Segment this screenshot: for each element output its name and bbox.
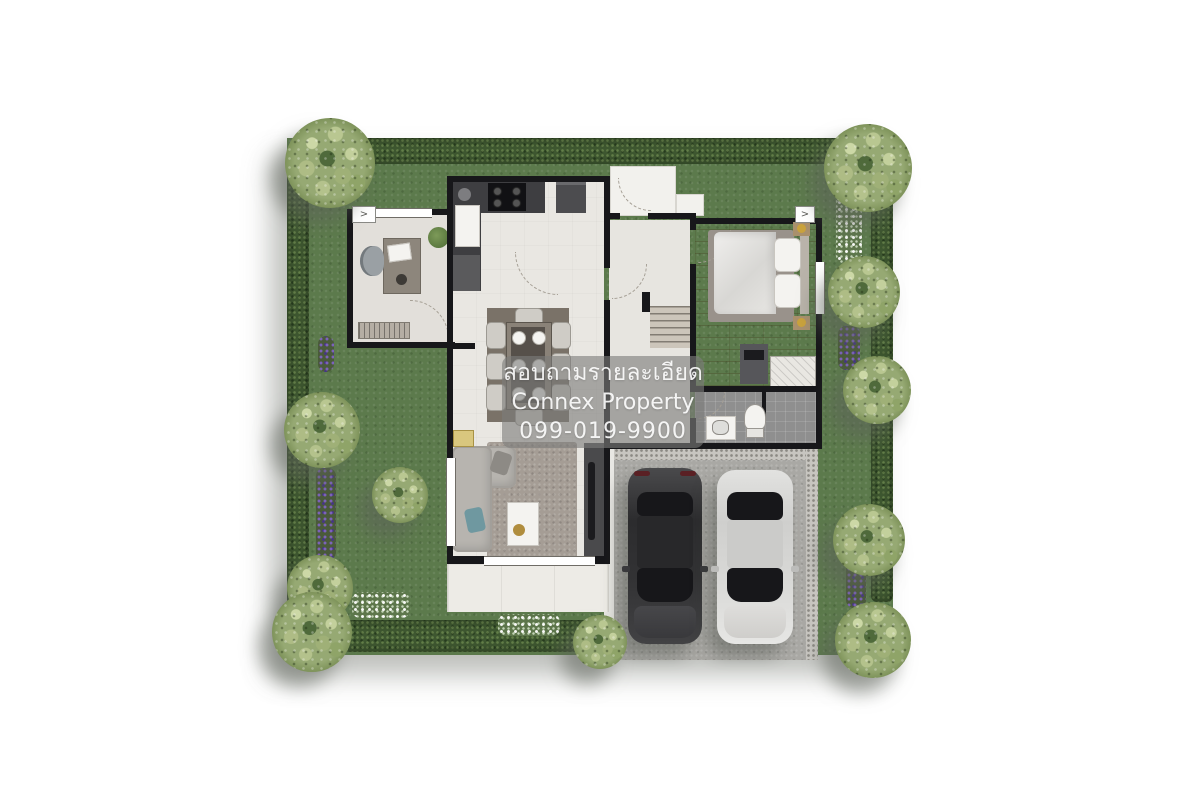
wall bbox=[447, 176, 453, 458]
plate bbox=[532, 331, 546, 345]
bedroom-tv-screen bbox=[744, 350, 764, 360]
car-roof bbox=[727, 520, 783, 568]
car-mirror bbox=[791, 566, 799, 572]
tree bbox=[833, 504, 905, 576]
bed-duvet bbox=[714, 232, 776, 314]
tv-screen bbox=[588, 462, 595, 540]
dining-chair bbox=[486, 322, 506, 349]
refrigerator-icon bbox=[556, 182, 586, 213]
watermark-line-brand: Connex Property bbox=[512, 388, 695, 417]
stove-icon bbox=[488, 183, 526, 211]
dining-chair bbox=[551, 322, 571, 349]
flowerbed-white-bottom-left bbox=[352, 592, 410, 618]
tree bbox=[285, 118, 375, 208]
toilet-icon bbox=[744, 404, 766, 430]
flowerbed-purple-left bbox=[316, 468, 336, 560]
bedroom-entry-marker: > bbox=[795, 206, 815, 223]
wall bbox=[816, 312, 822, 449]
car-rear-window bbox=[727, 492, 783, 520]
bed-pillow bbox=[774, 274, 801, 308]
floor-lamp bbox=[453, 430, 474, 447]
table-lamp-icon bbox=[797, 224, 806, 233]
bedroom-window bbox=[815, 262, 825, 314]
office-plant-icon bbox=[428, 227, 449, 248]
tree bbox=[828, 256, 900, 328]
flowerbed-purple-left-upper bbox=[318, 336, 334, 372]
wall bbox=[349, 342, 455, 348]
watermark-line-phone: 099-019-9900 bbox=[519, 417, 687, 446]
car-dark bbox=[628, 468, 702, 644]
hedge-top bbox=[295, 138, 895, 164]
wall bbox=[642, 292, 650, 312]
watermark-line-thai: สอบถามรายละเอียด bbox=[503, 359, 703, 388]
table-lamp-icon bbox=[797, 318, 806, 327]
office-window bbox=[376, 208, 432, 218]
bed-pillow bbox=[774, 238, 801, 272]
car-silver bbox=[717, 470, 793, 644]
laptop-icon bbox=[387, 242, 412, 262]
car-windshield bbox=[727, 568, 783, 602]
tree bbox=[284, 392, 360, 468]
car-tail-light bbox=[680, 471, 696, 476]
living-room-sliding-door bbox=[484, 556, 595, 566]
car-roof bbox=[637, 516, 693, 568]
tree bbox=[843, 356, 911, 424]
toilet-tank bbox=[746, 428, 764, 438]
corner-sink bbox=[458, 188, 471, 201]
wall bbox=[604, 176, 610, 268]
arrow-icon: > bbox=[801, 209, 809, 220]
wardrobe bbox=[770, 356, 816, 388]
arrow-icon: > bbox=[360, 209, 368, 220]
wall bbox=[690, 386, 820, 392]
wall bbox=[816, 218, 822, 264]
car-windshield bbox=[637, 568, 693, 602]
tree bbox=[824, 124, 912, 212]
car-rear-window bbox=[637, 492, 693, 516]
tree bbox=[272, 592, 352, 672]
kitchen-sink bbox=[455, 205, 480, 247]
watermark: สอบถามรายละเอียด Connex Property 099-019… bbox=[502, 356, 704, 448]
coffee-table bbox=[507, 502, 539, 546]
garden-bush bbox=[573, 615, 627, 669]
wall bbox=[447, 556, 487, 564]
car-hood bbox=[634, 606, 696, 638]
wall bbox=[347, 209, 353, 348]
wall bbox=[648, 213, 696, 219]
car-mirror bbox=[700, 566, 708, 572]
kitchen-cabinet bbox=[452, 255, 480, 291]
car-mirror bbox=[622, 566, 630, 572]
driveway-pebble-border-top bbox=[614, 448, 818, 460]
bookshelf bbox=[358, 322, 410, 339]
decor-bowl bbox=[513, 524, 525, 536]
staircase bbox=[650, 306, 694, 348]
car-hood bbox=[724, 606, 786, 638]
sofa-body bbox=[452, 446, 492, 552]
tree bbox=[835, 602, 911, 678]
driveway-pebble-border-right bbox=[806, 448, 818, 660]
floor-plan-canvas: > > bbox=[0, 0, 1200, 800]
terrace bbox=[447, 564, 609, 612]
flowerbed-white-bottom-mid bbox=[498, 614, 560, 636]
garden-bush bbox=[372, 467, 428, 523]
living-room-side-window bbox=[446, 458, 456, 546]
car-mirror bbox=[711, 566, 719, 572]
car-tail-light bbox=[634, 471, 650, 476]
wall bbox=[690, 218, 696, 230]
office-entry-marker: > bbox=[352, 206, 376, 223]
headboard bbox=[800, 232, 809, 314]
plate bbox=[512, 331, 526, 345]
desk-tray bbox=[396, 274, 407, 285]
office-chair bbox=[360, 246, 384, 276]
vanity-basin bbox=[712, 420, 729, 435]
wall bbox=[447, 546, 453, 564]
